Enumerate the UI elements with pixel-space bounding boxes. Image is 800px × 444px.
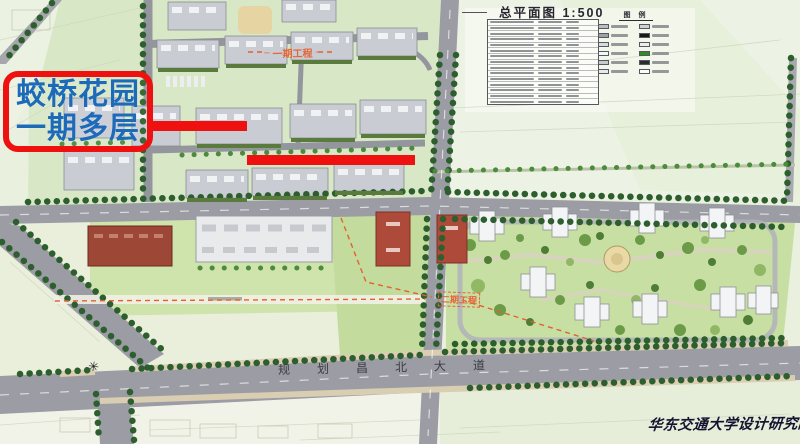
indicator-cell <box>566 95 579 97</box>
indicator-cell <box>490 61 534 63</box>
legend-swatches <box>598 24 674 74</box>
site-plan-page: —— 总平面图 1:500 图 例 蛟桥花园 一期多层 – 一期工程 – 二期工… <box>0 0 800 444</box>
legend-swatch <box>639 33 650 38</box>
indicator-cell <box>538 101 562 103</box>
legend-label-blur <box>611 43 628 46</box>
indicator-cell <box>490 95 534 97</box>
legend-swatch <box>598 51 609 56</box>
indicator-cell <box>566 33 579 35</box>
phase1-label: – 一期工程 – <box>264 45 321 61</box>
site-plan-drawing <box>0 0 800 444</box>
indicator-cell <box>538 33 562 35</box>
indicator-cell <box>490 44 534 46</box>
indicator-cell <box>490 78 534 80</box>
legend-item <box>598 69 633 74</box>
legend-label-blur <box>652 52 669 55</box>
legend-item <box>639 33 674 38</box>
junction-marker: ✳ <box>87 358 100 375</box>
indicator-cell <box>538 95 562 97</box>
indicator-cell <box>538 78 562 80</box>
indicator-cell <box>566 44 579 46</box>
legend-swatch <box>598 33 609 38</box>
phase1-tick-left: – <box>264 47 270 58</box>
highlight-bar-1 <box>152 121 247 131</box>
legend-item <box>598 51 633 56</box>
legend-label-blur <box>652 61 669 64</box>
legend-label-blur <box>652 25 669 28</box>
indicator-cell <box>490 27 534 29</box>
legend-item <box>598 24 633 29</box>
legend-swatch <box>598 24 609 29</box>
legend-title: 图 例 <box>619 12 653 21</box>
callout-line-2: 一期多层 <box>16 112 140 146</box>
title-dash: —— <box>462 5 487 19</box>
playground <box>238 6 272 34</box>
indicator-cell <box>490 67 534 69</box>
indicator-cell <box>566 89 579 91</box>
indicator-cell <box>538 27 562 29</box>
indicator-cell <box>538 84 562 86</box>
indicator-cell <box>490 89 534 91</box>
legend-label-blur <box>611 70 628 73</box>
indicator-cell <box>490 33 534 35</box>
legend-swatch <box>598 69 609 74</box>
legend-label-blur <box>652 43 669 46</box>
legend-label-blur <box>611 61 628 64</box>
indicator-cell <box>538 72 562 74</box>
phase1-tick-right: – <box>315 47 321 58</box>
legend-swatch <box>639 24 650 29</box>
legend-item <box>639 42 674 47</box>
indicator-cell <box>566 27 579 29</box>
indicator-cell <box>538 61 562 63</box>
phase2-label: 二期工程 <box>438 291 481 307</box>
indicator-cell <box>538 55 562 57</box>
indicator-cell <box>490 38 534 40</box>
indicator-cell <box>490 50 534 52</box>
legend-item <box>598 42 633 47</box>
legend-label-blur <box>611 25 628 28</box>
indicator-cell <box>538 89 562 91</box>
legend-panel: 图 例 <box>598 12 674 74</box>
indicator-cell <box>538 50 562 52</box>
design-institute-signature: 华东交通大学设计研究院 <box>647 412 800 435</box>
legend-item <box>639 60 674 65</box>
legend-swatch <box>639 51 650 56</box>
legend-label-blur <box>611 52 628 55</box>
legend-item <box>598 33 633 38</box>
legend-item <box>639 24 674 29</box>
indicator-cell <box>538 44 562 46</box>
indicator-cell <box>566 21 579 23</box>
legend-swatch <box>639 42 650 47</box>
legend-item <box>598 60 633 65</box>
indicator-cell <box>566 50 579 52</box>
annotation-callout-box: 蛟桥花园 一期多层 <box>3 71 153 152</box>
indicator-cell <box>566 72 579 74</box>
indicator-cell <box>566 84 579 86</box>
legend-swatch <box>598 42 609 47</box>
indicator-cell <box>566 78 579 80</box>
indicator-table <box>487 19 599 105</box>
phase1-text: 一期工程 <box>272 45 312 61</box>
legend-swatch <box>639 69 650 74</box>
indicator-cell <box>566 67 579 69</box>
indicator-cell <box>490 55 534 57</box>
indicator-cell <box>566 61 579 63</box>
legend-swatch <box>639 60 650 65</box>
indicator-cell <box>538 67 562 69</box>
indicator-cell <box>490 21 534 23</box>
legend-item <box>639 69 674 74</box>
indicator-cell <box>490 72 534 74</box>
legend-label-blur <box>652 34 669 37</box>
indicator-cell <box>538 21 562 23</box>
indicator-cell <box>538 38 562 40</box>
indicator-cell <box>490 101 534 103</box>
legend-label-blur <box>652 70 669 73</box>
legend-item <box>639 51 674 56</box>
callout-line-1: 蛟桥花园 <box>16 78 140 112</box>
indicator-cell <box>566 55 579 57</box>
indicator-cell <box>566 101 579 103</box>
legend-swatch <box>598 60 609 65</box>
indicator-cell <box>490 84 534 86</box>
legend-label-blur <box>611 34 628 37</box>
highlight-bar-2 <box>247 155 415 165</box>
indicator-cell <box>566 38 579 40</box>
indicator-row <box>488 99 598 104</box>
